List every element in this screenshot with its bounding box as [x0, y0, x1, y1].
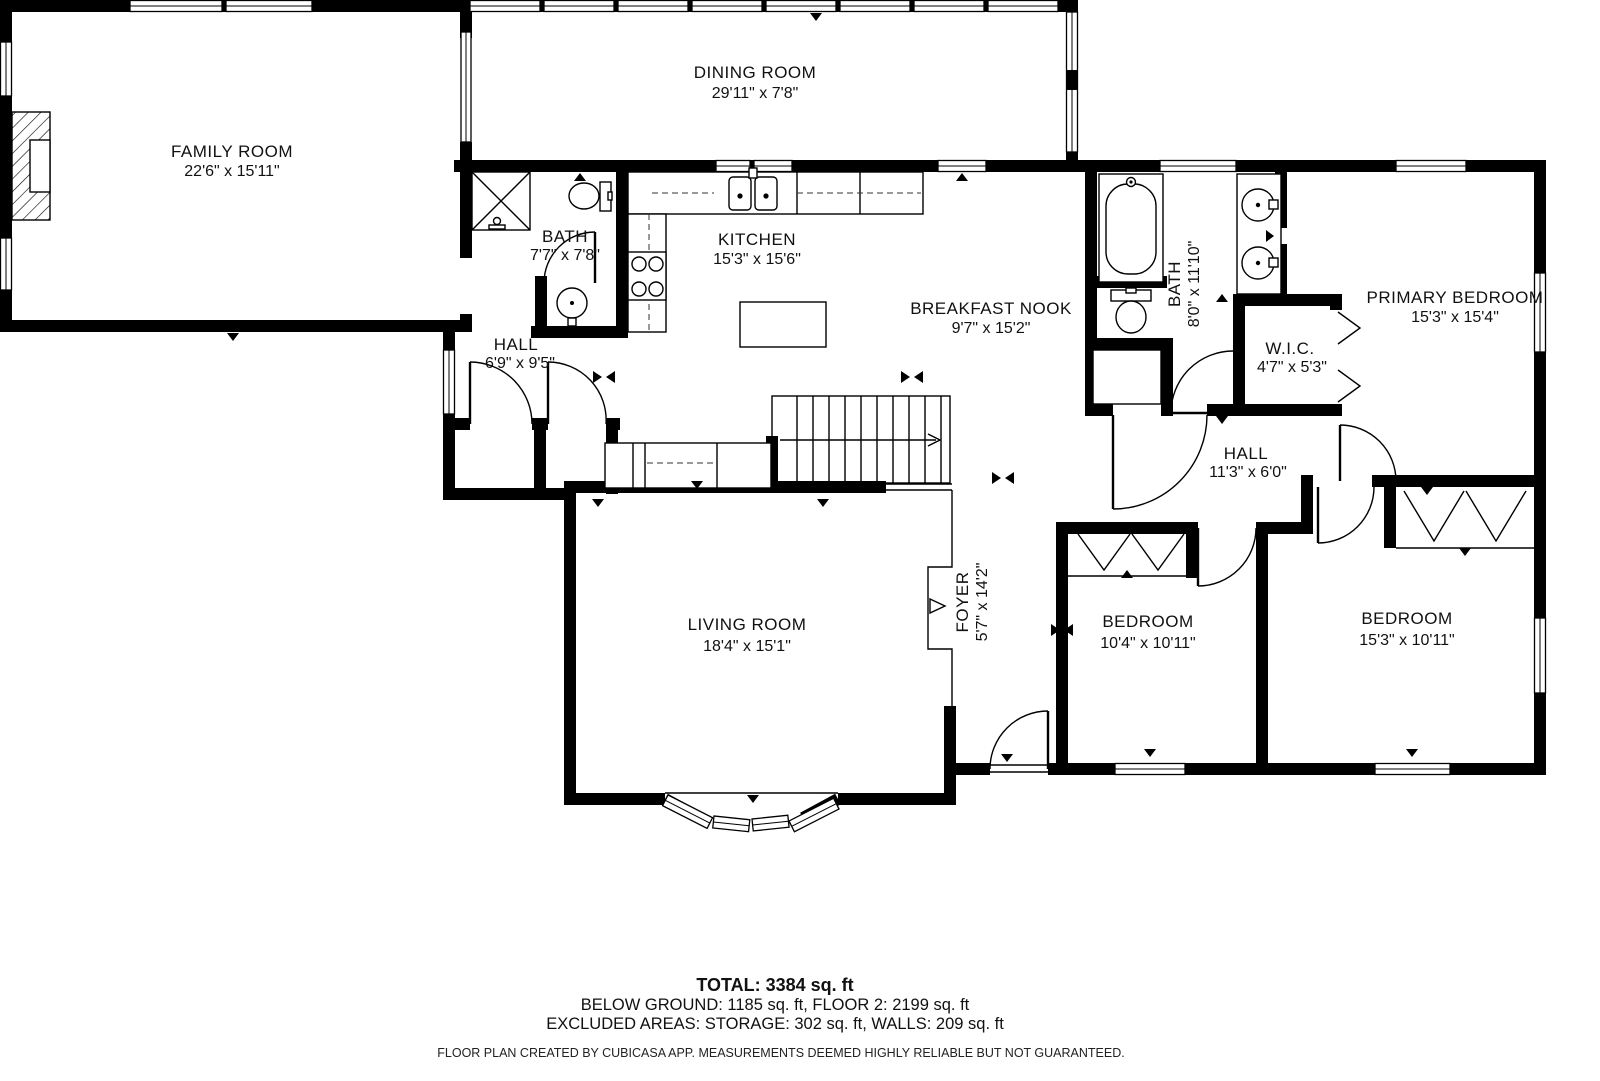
- fireplace-icon: [12, 112, 50, 220]
- opening-marker-icon: [227, 333, 239, 341]
- svg-text:BATH: BATH: [542, 227, 588, 246]
- svg-text:HALL: HALL: [494, 335, 539, 354]
- svg-text:BREAKFAST NOOK: BREAKFAST NOOK: [910, 299, 1072, 318]
- toilet-icon: [569, 182, 612, 211]
- opening-marker-icon: [1421, 487, 1433, 495]
- floor-plan-drawing: FAMILY ROOM 22'6" x 15'11" DINING ROOM 2…: [0, 0, 1600, 1081]
- opening-marker-icon: [1216, 416, 1228, 424]
- svg-text:10'4" x 10'11": 10'4" x 10'11": [1100, 635, 1195, 652]
- wic-bifold-icon: [1338, 370, 1360, 402]
- scan-marker-icon: [992, 472, 1014, 484]
- window: [544, 1, 614, 12]
- svg-text:15'3" x 10'11": 15'3" x 10'11": [1359, 632, 1454, 649]
- svg-text:FAMILY ROOM: FAMILY ROOM: [171, 142, 293, 161]
- opening-marker-icon: [1121, 570, 1133, 578]
- area-breakdown-text: BELOW GROUND: 1185 sq. ft, FLOOR 2: 2199…: [581, 996, 970, 1014]
- bedroom-large-label: BEDROOM 15'3" x 10'11": [1359, 609, 1454, 649]
- hall-bedroom-label: HALL 11'3" x 6'0": [1209, 444, 1287, 481]
- window: [692, 1, 762, 12]
- closet-door-icon: [1132, 534, 1184, 570]
- door-primary-bedroom: [1340, 425, 1396, 481]
- vanity-sinks-icon: [1237, 174, 1281, 294]
- breakfast-nook-label: BREAKFAST NOOK 9'7" x 15'2": [910, 299, 1072, 337]
- svg-text:8'0" x 11'10": 8'0" x 11'10": [1186, 241, 1203, 328]
- window: [840, 1, 910, 12]
- window: [988, 1, 1058, 12]
- window: [716, 161, 750, 172]
- linen-closet: [1093, 350, 1161, 404]
- svg-text:W.I.C.: W.I.C.: [1265, 339, 1314, 358]
- opening-marker-icon: [1406, 749, 1418, 757]
- stove-icon: [628, 252, 666, 300]
- wic-bifold-icon: [1338, 312, 1360, 344]
- window: [1535, 618, 1546, 693]
- pedestal-sink-icon: [557, 288, 587, 326]
- svg-text:FOYER: FOYER: [953, 571, 972, 632]
- door-bath-primary: [1113, 415, 1207, 509]
- room-labels: FAMILY ROOM 22'6" x 15'11" DINING ROOM 2…: [171, 63, 1543, 655]
- opening-marker-icon: [1001, 754, 1013, 762]
- opening-marker-icon: [1216, 294, 1228, 302]
- window: [1, 238, 12, 290]
- dining-room-label: DINING ROOM 29'11" x 7'8": [694, 63, 817, 102]
- svg-text:9'7" x 15'2": 9'7" x 15'2": [952, 320, 1031, 337]
- disclaimer-text: FLOOR PLAN CREATED BY CUBICASA APP. MEAS…: [437, 1046, 1124, 1060]
- opening-marker-icon: [1459, 548, 1471, 556]
- closet-door-icon: [1404, 491, 1464, 541]
- svg-text:11'3" x 6'0": 11'3" x 6'0": [1209, 464, 1287, 481]
- svg-text:15'3" x 15'6": 15'3" x 15'6": [713, 251, 801, 268]
- svg-text:BEDROOM: BEDROOM: [1361, 609, 1452, 628]
- window: [226, 1, 312, 12]
- opening-marker-icon: [817, 499, 829, 507]
- svg-text:HALL: HALL: [1224, 444, 1269, 463]
- svg-text:5'7" x 14'2": 5'7" x 14'2": [974, 563, 991, 642]
- primary-bedroom-label: PRIMARY BEDROOM 15'3" x 15'4": [1367, 288, 1544, 326]
- window: [938, 161, 986, 172]
- svg-text:DINING ROOM: DINING ROOM: [694, 63, 817, 82]
- svg-text:7'7" x 7'8": 7'7" x 7'8": [530, 247, 600, 264]
- window: [766, 1, 836, 12]
- svg-text:KITCHEN: KITCHEN: [718, 230, 796, 249]
- svg-text:6'9" x 9'5": 6'9" x 9'5": [485, 355, 555, 372]
- bath-primary-label: BATH 8'0" x 11'10": [1165, 241, 1203, 328]
- wic-label: W.I.C. 4'7" x 5'3": [1257, 339, 1327, 376]
- door-bedroom-large: [1318, 487, 1374, 543]
- bedroom-small-label: BEDROOM 10'4" x 10'11": [1100, 612, 1195, 652]
- closet-door-icon: [1078, 534, 1130, 570]
- window: [914, 1, 984, 12]
- window: [754, 161, 792, 172]
- total-area-text: TOTAL: 3384 sq. ft: [696, 975, 853, 995]
- window: [130, 1, 222, 12]
- svg-text:BATH: BATH: [1165, 261, 1184, 307]
- scan-marker-icon: [901, 371, 923, 383]
- window: [1375, 764, 1450, 775]
- window: [1396, 161, 1466, 172]
- scan-marker-icon: [593, 371, 615, 383]
- foyer-label: FOYER 5'7" x 14'2": [953, 563, 991, 642]
- living-room-label: LIVING ROOM 18'4" x 15'1": [688, 615, 807, 655]
- area-summary: TOTAL: 3384 sq. ft BELOW GROUND: 1185 sq…: [437, 975, 1124, 1060]
- svg-text:LIVING ROOM: LIVING ROOM: [688, 615, 807, 634]
- svg-text:15'3" x 15'4": 15'3" x 15'4": [1411, 309, 1499, 326]
- walls: [0, 0, 1546, 805]
- opening-marker-icon: [747, 795, 759, 803]
- hall-lower-label: HALL 6'9" x 9'5": [485, 335, 555, 372]
- svg-text:29'11" x 7'8": 29'11" x 7'8": [712, 85, 799, 102]
- door-hall-closet-right: [548, 362, 606, 424]
- storage-cabinet: [605, 443, 771, 488]
- excluded-areas-text: EXCLUDED AREAS: STORAGE: 302 sq. ft, WAL…: [546, 1015, 1004, 1033]
- glass-partition: [461, 32, 471, 142]
- svg-text:PRIMARY BEDROOM: PRIMARY BEDROOM: [1367, 288, 1544, 307]
- window: [1, 42, 12, 96]
- niche-marker-icon: [930, 599, 945, 613]
- window: [470, 1, 540, 12]
- floor-plan-page: FAMILY ROOM 22'6" x 15'11" DINING ROOM 2…: [0, 0, 1600, 1081]
- svg-text:4'7" x 5'3": 4'7" x 5'3": [1257, 359, 1327, 376]
- windows: [1, 1, 1546, 775]
- opening-marker-icon: [1144, 749, 1156, 757]
- door-bedroom-small: [1198, 528, 1256, 586]
- door-wic: [1171, 351, 1233, 413]
- window: [1160, 161, 1236, 172]
- svg-text:22'6" x 15'11": 22'6" x 15'11": [184, 163, 279, 180]
- opening-marker-icon: [574, 173, 586, 181]
- window: [444, 350, 455, 414]
- toilet-icon: [1111, 288, 1151, 333]
- kitchen-label: KITCHEN 15'3" x 15'6": [713, 230, 801, 268]
- window: [1115, 764, 1185, 775]
- svg-text:18'4" x 15'1": 18'4" x 15'1": [703, 638, 791, 655]
- window: [1535, 273, 1546, 352]
- shower-icon: [472, 172, 530, 230]
- front-door: [990, 711, 1048, 769]
- closet-door-icon: [1466, 491, 1526, 541]
- window: [618, 1, 688, 12]
- bathtub-icon: [1099, 174, 1163, 282]
- opening-marker-icon: [592, 499, 604, 507]
- opening-marker-icon: [956, 173, 968, 181]
- family-room-label: FAMILY ROOM 22'6" x 15'11": [171, 142, 293, 180]
- svg-text:BEDROOM: BEDROOM: [1102, 612, 1193, 631]
- opening-marker-icon: [810, 13, 822, 21]
- stairs: [772, 396, 952, 490]
- kitchen-island: [740, 302, 826, 347]
